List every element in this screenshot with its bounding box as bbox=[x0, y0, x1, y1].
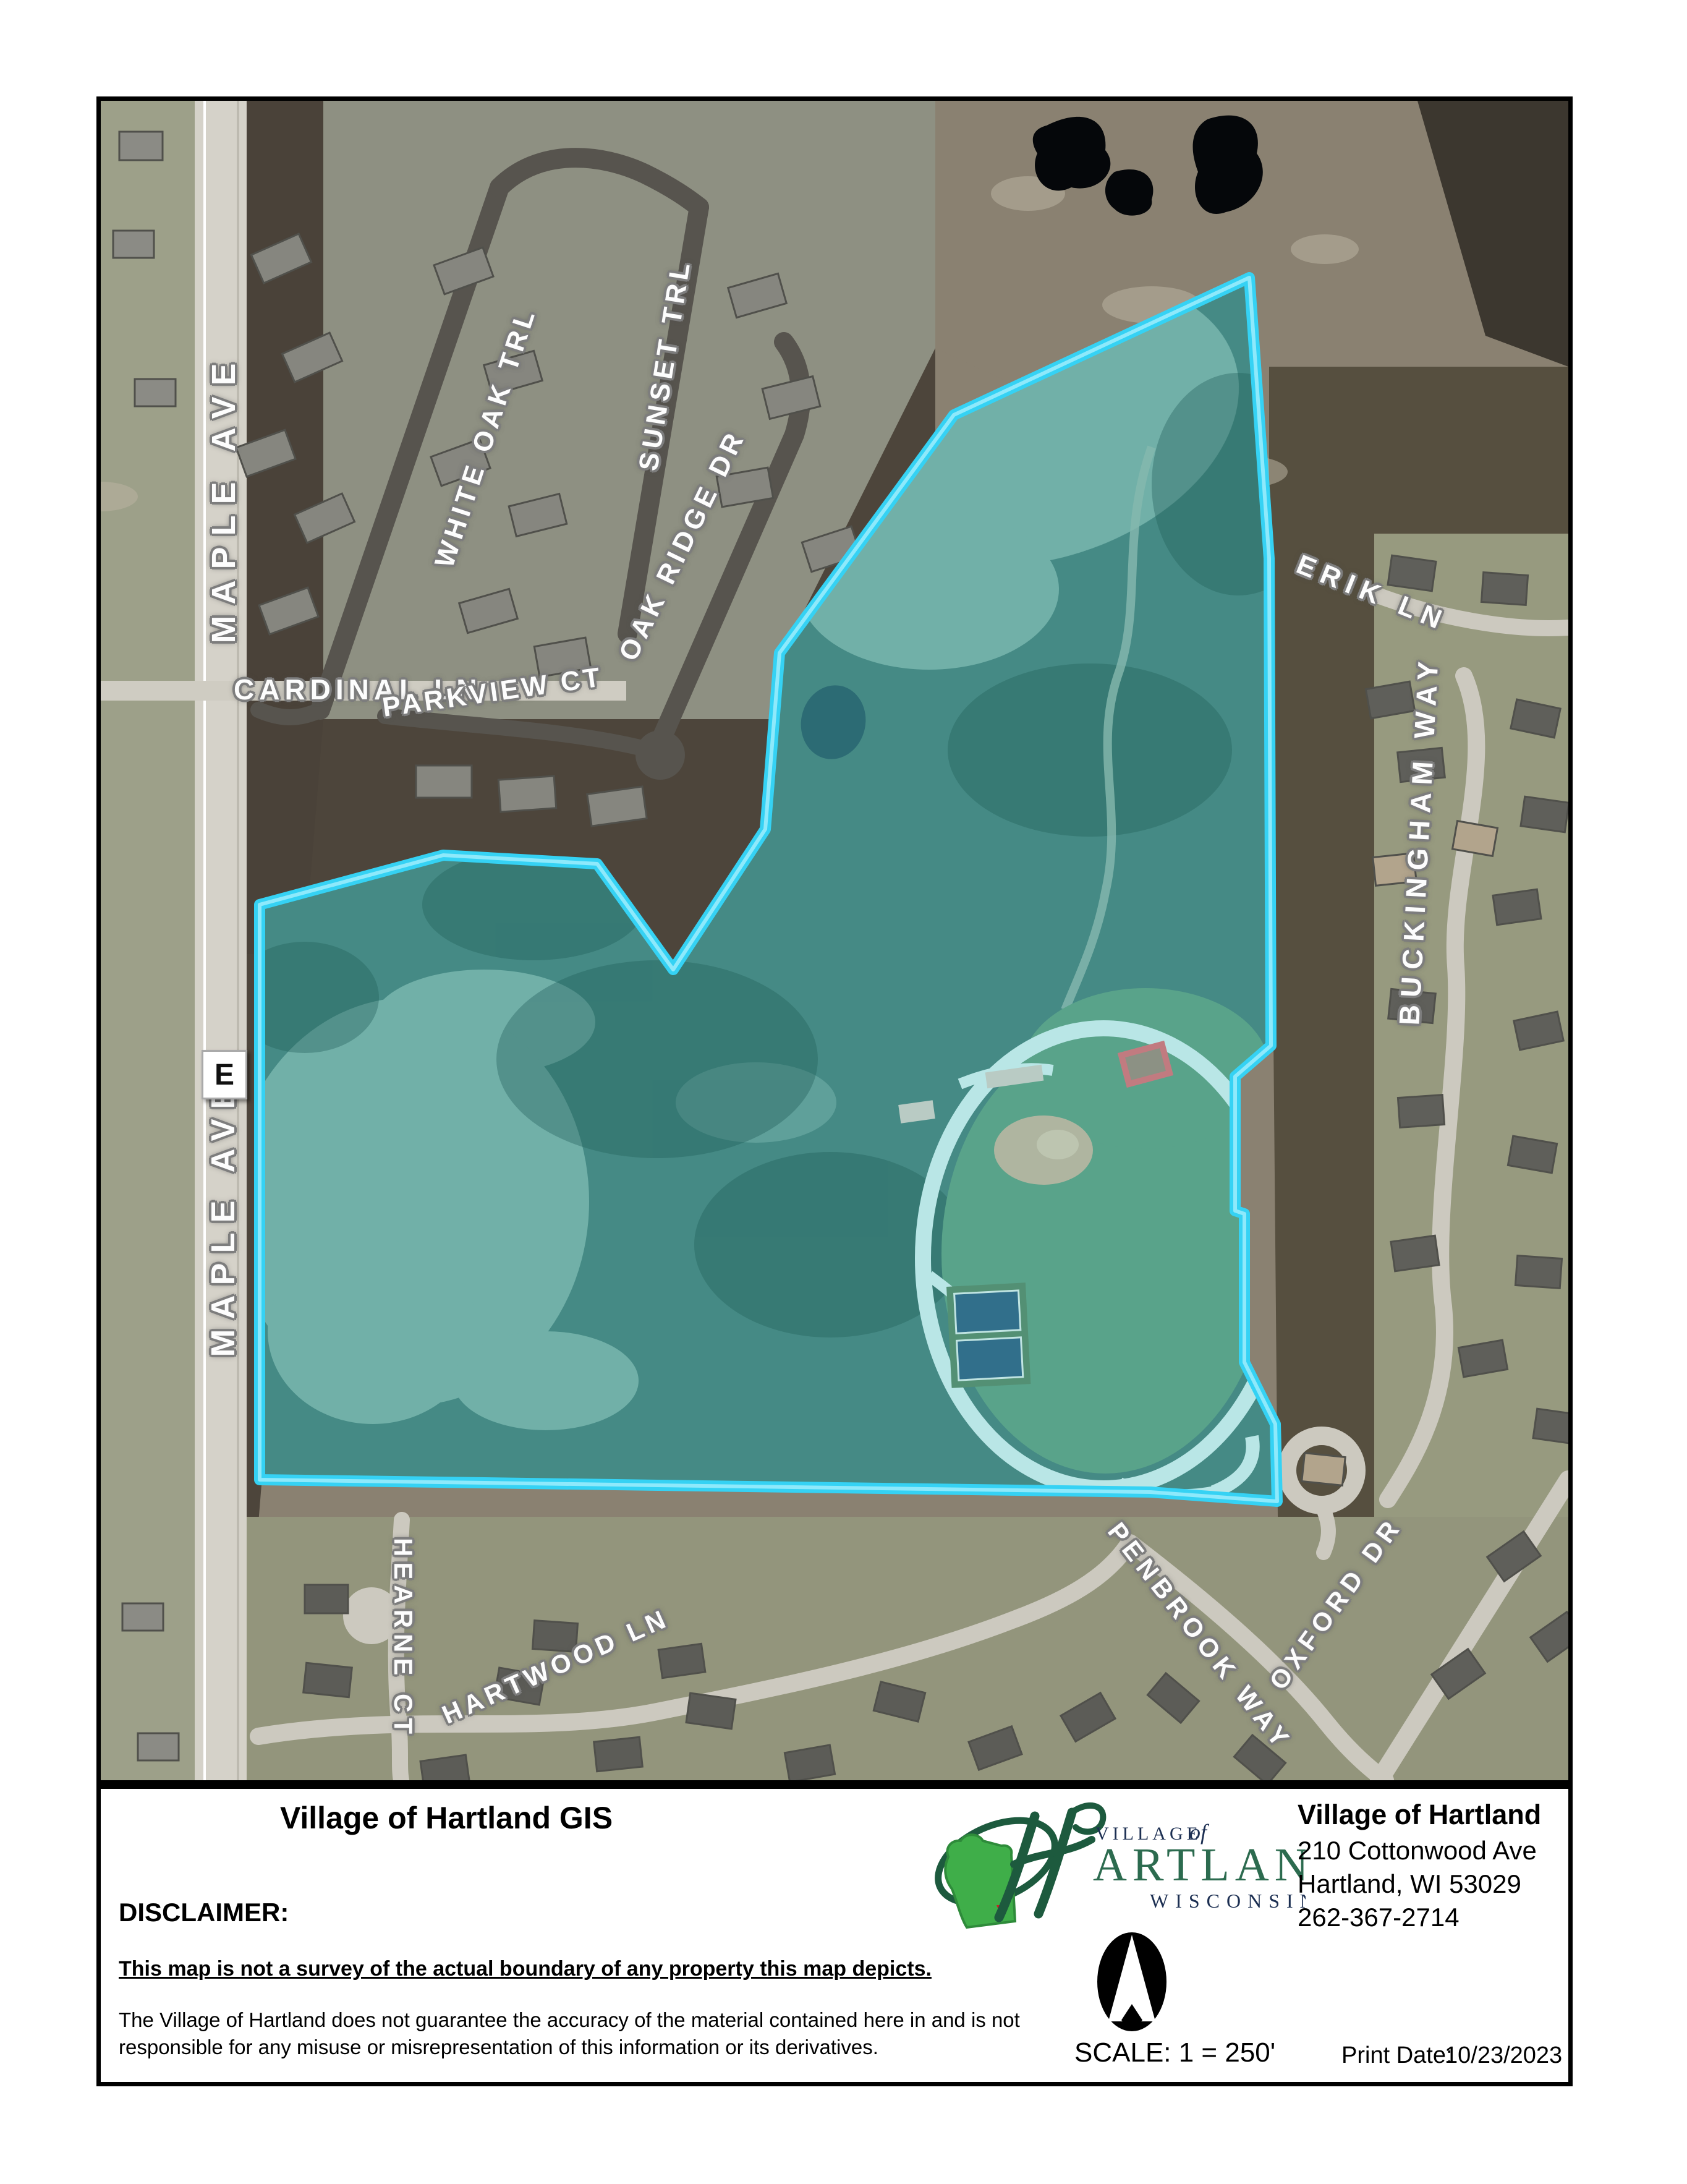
organization-address2: Hartland, WI 53029 bbox=[1298, 1869, 1541, 1899]
street-label-maple-ave-north: MAPLE AVE bbox=[205, 352, 243, 643]
north-arrow-icon bbox=[1094, 1930, 1170, 2034]
disclaimer-body: The Village of Hartland does not guarant… bbox=[119, 2007, 1083, 2060]
disclaimer-statement: This map is not a survey of the actual b… bbox=[119, 1957, 932, 1981]
disclaimer-label: DISCLAIMER: bbox=[119, 1898, 289, 1927]
street-label-maple-ave-south: MAPLE AVE bbox=[204, 1077, 242, 1357]
hartland-logo-icon: VILLAGE of ARTLAND WISCONSIN bbox=[904, 1795, 1306, 1943]
print-date-label: Print Date: bbox=[1341, 2042, 1453, 2069]
organization-name: Village of Hartland bbox=[1298, 1799, 1541, 1831]
organization-block: Village of Hartland 210 Cottonwood Ave H… bbox=[1298, 1799, 1541, 1932]
print-date-value: 10/23/2023 bbox=[1445, 2042, 1562, 2069]
aerial-basemap bbox=[101, 101, 1568, 1780]
street-label-hearne-ct: HEARNE CT bbox=[388, 1538, 418, 1739]
highway-e-letter: E bbox=[215, 1058, 234, 1092]
scale-text: SCALE: 1 = 250' bbox=[1074, 2037, 1275, 2068]
hartland-logo: VILLAGE of ARTLAND WISCONSIN bbox=[904, 1795, 1306, 1943]
highway-e-shield: E bbox=[202, 1050, 247, 1099]
map-footer: Village of Hartland GIS DISCLAIMER: This… bbox=[96, 1785, 1573, 2086]
logo-wisconsin-text: WISCONSIN bbox=[1150, 1890, 1306, 1912]
organization-phone: 262-367-2714 bbox=[1298, 1903, 1541, 1932]
organization-address1: 210 Cottonwood Ave bbox=[1298, 1836, 1541, 1866]
map-sheet-page: MAPLE AVE WHITE OAK TRL SUNSET TRL OAK R… bbox=[0, 0, 1687, 2184]
logo-artland-text: ARTLAND bbox=[1093, 1839, 1306, 1891]
map-viewport: MAPLE AVE WHITE OAK TRL SUNSET TRL OAK R… bbox=[96, 96, 1573, 1785]
map-title: Village of Hartland GIS bbox=[280, 1800, 613, 1836]
